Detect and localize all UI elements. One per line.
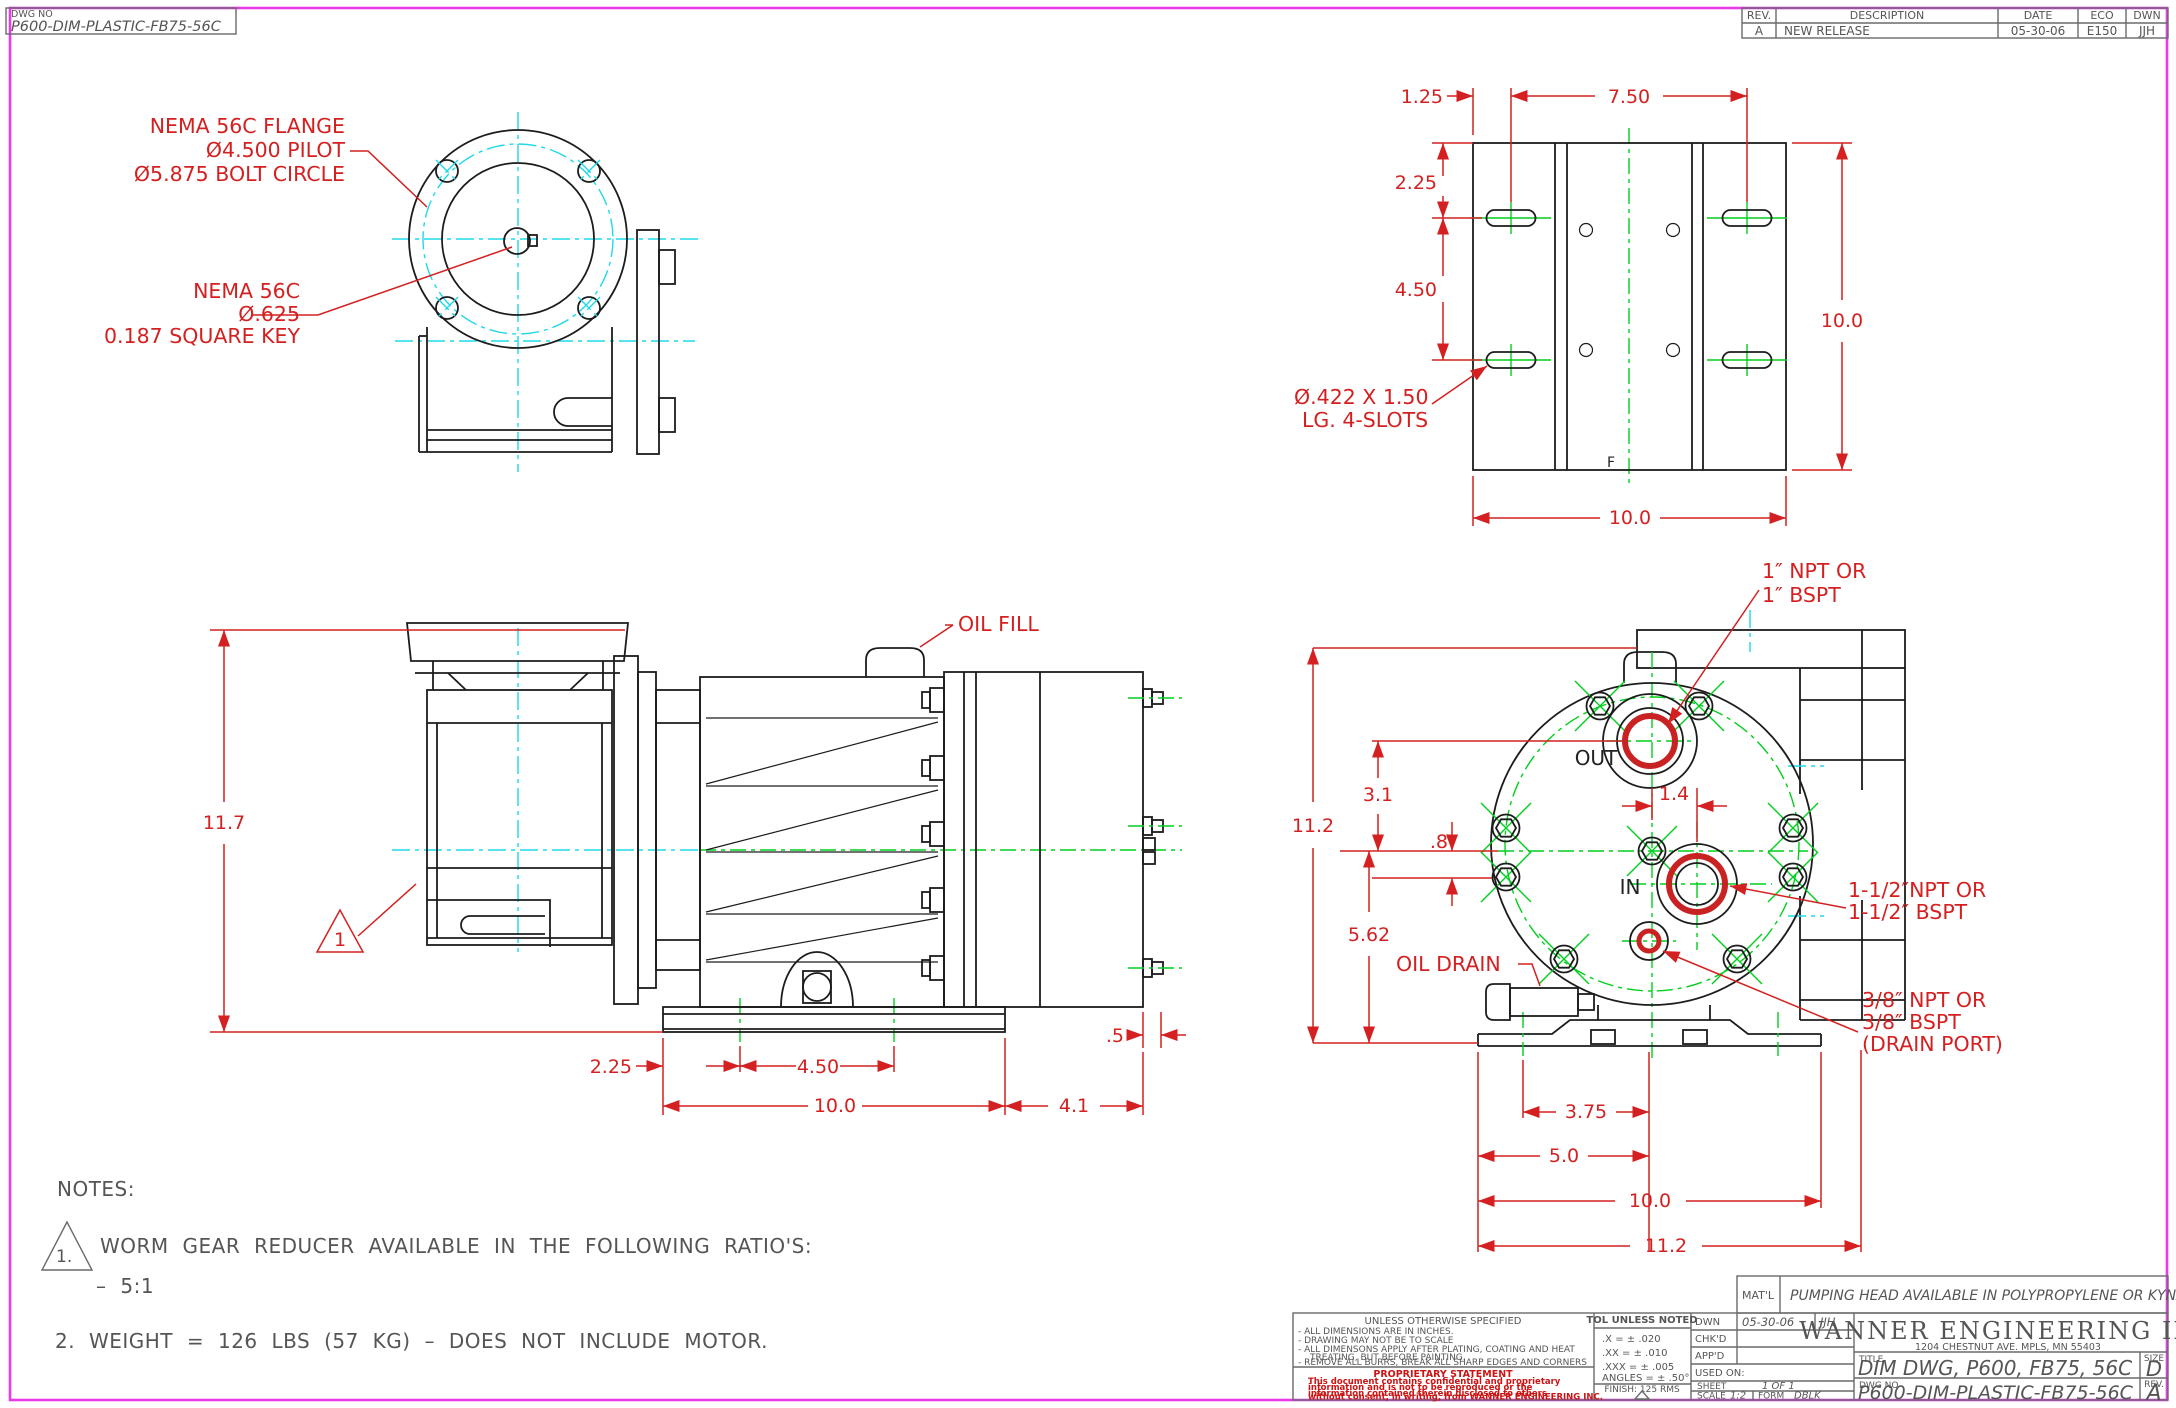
rev-date: 05-30-06: [2011, 24, 2065, 38]
spec-heading: UNLESS OTHERWISE SPECIFIED: [1365, 1316, 1522, 1327]
shaft-callout-line1: NEMA 56C: [193, 279, 300, 303]
company-address: 1204 CHESTNUT AVE. MPLS, MN 55403: [1915, 1342, 2101, 1353]
used-on-label: USED ON:: [1695, 1368, 1745, 1379]
dim-base-4-50: 4.50: [797, 1056, 839, 1078]
mounting-plate-view: F 1.25 7.50 2.25 4.50 10.0 10.0 Ø.422 X …: [1294, 86, 1863, 529]
tol-x: .X = ± .020: [1602, 1334, 1661, 1345]
dim-1-25: 1.25: [1401, 86, 1443, 108]
rev-value: A: [1755, 24, 1764, 38]
dwn-date: 05-30-06: [1742, 1315, 1794, 1329]
finish-note: FINISH: 125 RMS: [1604, 1385, 1680, 1395]
title-block: MAT'L PUMPING HEAD AVAILABLE IN POLYPROP…: [1293, 1276, 2176, 1406]
page-border: [10, 8, 2167, 1400]
dim-base-10: 10.0: [814, 1095, 856, 1117]
gearbox-body: [419, 230, 675, 454]
shaft-callout-line2: Ø.625: [238, 302, 300, 326]
rev-description: NEW RELEASE: [1784, 24, 1870, 38]
pump-front-view: OUT IN OIL DRAIN 1″ NPT OR 1″ BSPT 1-1/2…: [1292, 559, 2003, 1257]
reducer-silhouette: [1637, 610, 1905, 1020]
note-flag-number: 1: [334, 929, 346, 951]
note2-text: 2. WEIGHT = 126 LBS (57 KG) – DOES NOT I…: [55, 1329, 768, 1353]
dim-10-0-front: 10.0: [1629, 1190, 1671, 1212]
motor-adapter: [614, 656, 700, 1004]
dim-5-0: 5.0: [1549, 1145, 1579, 1167]
flange-callout-line2: Ø4.500 PILOT: [206, 138, 346, 162]
in-port-callout-1: 1-1/2″NPT OR: [1848, 878, 1986, 902]
proprietary-line4: without consent, in writing, from WANNER…: [1308, 1393, 1603, 1403]
spec-line4: - REMOVE ALL BURRS, BREAK ALL SHARP EDGE…: [1298, 1358, 1587, 1368]
engineering-drawing-page: { "colors": {"dimension_red": "#d42020",…: [0, 0, 2176, 1408]
rev-value-box: A: [2144, 1381, 2161, 1406]
dwg-no-value: P600-DIM-PLASTIC-FB75-56C: [11, 19, 222, 35]
drain-port-callout-3: (DRAIN PORT): [1862, 1032, 2003, 1056]
scale-label: SCALE: [1697, 1392, 1726, 1402]
dim-base-2-25: 2.25: [590, 1056, 632, 1078]
notes-heading: NOTES:: [57, 1177, 135, 1201]
sheet-label: SHEET: [1697, 1382, 1727, 1392]
dim-0-8: .8: [1430, 831, 1448, 853]
pump-side-view: OIL FILL 1 11.7 2.25 4.50 10.0 4.1: [203, 612, 1186, 1117]
oil-drain-valve: [1486, 984, 1594, 1020]
flange-callout-line3: Ø5.875 BOLT CIRCLE: [134, 162, 345, 186]
tol-angles: ANGLES = ± .50°: [1602, 1373, 1690, 1384]
slot-callout-line2: LG. 4-SLOTS: [1302, 408, 1428, 432]
drain-port-callout-2: 3/8″ BSPT: [1862, 1010, 1961, 1034]
size-value: D: [2146, 1357, 2162, 1381]
title-value: DIM DWG, P600, FB75, 56C: [1858, 1356, 2132, 1380]
out-port-callout-1: 1″ NPT OR: [1762, 559, 1866, 583]
oil-drain-label: OIL DRAIN: [1396, 952, 1501, 976]
dwn-label: DWN: [1695, 1317, 1720, 1328]
oil-fill-label: OIL FILL: [958, 612, 1039, 636]
slot-callout-line1: Ø.422 X 1.50: [1294, 385, 1429, 409]
dwgno-value: P600-DIM-PLASTIC-FB75-56C: [1858, 1382, 2134, 1404]
chkd-label: CHK'D: [1695, 1334, 1727, 1345]
dim-4-50: 4.50: [1395, 279, 1437, 301]
drain-port-callout-1: 3/8″ NPT OR: [1862, 988, 1986, 1012]
dim-10-bottom: 10.0: [1609, 507, 1651, 529]
tol-xx: .XX = ± .010: [1602, 1348, 1667, 1359]
eco-header: ECO: [2090, 9, 2114, 22]
rev-header: REV.: [1747, 9, 1771, 22]
dim-2-25: 2.25: [1395, 172, 1437, 194]
note1-text: WORM GEAR REDUCER AVAILABLE IN THE FOLLO…: [100, 1234, 812, 1258]
rev-eco: E150: [2087, 24, 2118, 38]
shaft-callout-line3: 0.187 SQUARE KEY: [104, 324, 300, 348]
base-plate-front: [1478, 1005, 1821, 1056]
dim-head-4-1: 4.1: [1059, 1095, 1089, 1117]
dim-1-4: 1.4: [1659, 783, 1689, 805]
dim-11-2-left: 11.2: [1292, 815, 1334, 837]
revision-table: REV. DESCRIPTION DATE ECO DWN A NEW RELE…: [1742, 8, 2168, 38]
sheet-value: 1 OF 1: [1762, 1381, 1795, 1392]
company-name: WANNER ENGINEERING INC: [1799, 1317, 2176, 1345]
flange-callout-line1: NEMA 56C FLANGE: [150, 114, 345, 138]
matl-value: PUMPING HEAD AVAILABLE IN POLYPROPYLENE …: [1790, 1288, 2176, 1304]
dwn-header: DWN: [2133, 9, 2161, 22]
notes-block: NOTES: 1. WORM GEAR REDUCER AVAILABLE IN…: [42, 1177, 812, 1353]
dim-11-2-bottom: 11.2: [1645, 1235, 1687, 1257]
in-label: IN: [1620, 875, 1641, 899]
pump-head-side: [944, 672, 1182, 1007]
matl-label: MAT'L: [1742, 1289, 1775, 1302]
dim-5-62: 5.62: [1348, 924, 1390, 946]
dim-3-1: 3.1: [1363, 784, 1393, 806]
form-value: DBLK: [1794, 1391, 1822, 1402]
tol-xxx: .XXX = ± .005: [1602, 1362, 1674, 1373]
out-port-callout-2: 1″ BSPT: [1762, 583, 1841, 607]
out-label: OUT: [1575, 746, 1618, 770]
dim-bolt-0-5: .5: [1106, 1025, 1124, 1047]
note1-flag: 1.: [56, 1247, 72, 1267]
form-label: FORM: [1758, 1392, 1784, 1402]
rev-dwn: JJH: [2138, 24, 2155, 38]
dim-3-75: 3.75: [1565, 1101, 1607, 1123]
description-header: DESCRIPTION: [1850, 9, 1924, 22]
drawing-canvas: DWG NO P600-DIM-PLASTIC-FB75-56C REV. DE…: [0, 0, 2176, 1408]
date-header: DATE: [2024, 9, 2053, 22]
tol-heading: TOL UNLESS NOTED: [1586, 1315, 1697, 1326]
base-plate-side: [663, 952, 1005, 1032]
appd-label: APP'D: [1695, 1351, 1725, 1362]
plate-f-marker: F: [1607, 455, 1615, 471]
nema-flange-view: NEMA 56C FLANGE Ø4.500 PILOT Ø5.875 BOLT…: [104, 112, 700, 472]
note-flag-1: 1: [317, 884, 416, 952]
dim-10-right: 10.0: [1821, 310, 1863, 332]
in-port-callout-2: 1-1/2″ BSPT: [1848, 900, 1968, 924]
dim-7-50: 7.50: [1608, 86, 1650, 108]
dim-11-7: 11.7: [203, 812, 245, 834]
scale-value: 1:2: [1730, 1391, 1746, 1402]
dwg-no-box: DWG NO P600-DIM-PLASTIC-FB75-56C: [6, 8, 236, 35]
note1-sub: – 5:1: [96, 1274, 154, 1298]
